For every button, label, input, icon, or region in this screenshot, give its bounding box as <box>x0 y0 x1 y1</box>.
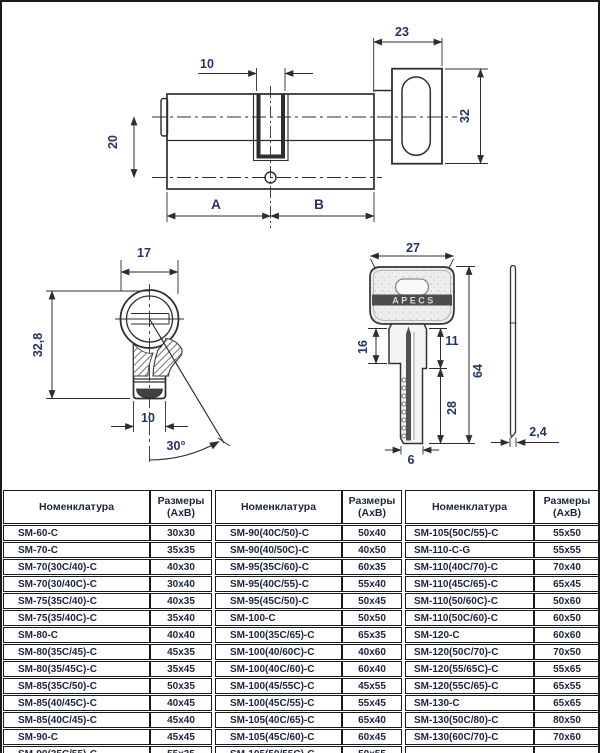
table-row: SM-70(30C/40)-C40x30 <box>3 559 212 575</box>
dim-label-blade: 28 <box>445 401 459 415</box>
table-row: SM-100(40/60C)-C40x60 <box>215 644 402 660</box>
size-cell: 45x45 <box>150 729 212 745</box>
table-row: SM-130-C65x65 <box>405 695 600 711</box>
table-row: SM-100(35C/65)-C65x35 <box>215 627 402 643</box>
cam-flap-hatch <box>153 339 182 377</box>
nomenclature-cell: SM-120(55C/65)-C <box>405 678 534 694</box>
nomenclature-cell: SM-95(35C/60)-C <box>215 559 342 575</box>
dim-label-tip-width: 6 <box>408 453 415 467</box>
size-cell: 70x40 <box>534 559 600 575</box>
table-row: SM-130(50C/80)-C80x50 <box>405 712 600 728</box>
size-cell: 60x50 <box>534 610 600 626</box>
size-cell: 55x45 <box>342 695 402 711</box>
nomenclature-cell: SM-60-C <box>3 525 150 541</box>
size-cell: 50x60 <box>534 593 600 609</box>
size-cell: 70x60 <box>534 729 600 745</box>
table-row: SM-120-C60x60 <box>405 627 600 643</box>
size-cell: 40x35 <box>150 593 212 609</box>
table-row: SM-105(50C/55)-C55x50 <box>405 525 600 541</box>
size-cell: 65x40 <box>342 712 402 728</box>
nomenclature-cell: SM-100(45C/55)-C <box>215 695 342 711</box>
dim-label-a: A <box>211 197 221 212</box>
rotation-line <box>150 319 225 443</box>
size-cell: 40x45 <box>150 695 212 711</box>
size-cell: 45x55 <box>342 678 402 694</box>
table-row: SM-105(45C/60)-C60x45 <box>215 729 402 745</box>
dim-label-knob-width: 23 <box>395 25 409 39</box>
dim-label-shoulder: 16 <box>356 340 370 354</box>
nomenclature-cell: SM-120(50C/70)-C <box>405 644 534 660</box>
size-cell: 55x65 <box>534 661 600 677</box>
table-row: SM-80(35/45C)-C35x45 <box>3 661 212 677</box>
size-cell: 60x45 <box>342 729 402 745</box>
nomenclature-cell: SM-80-C <box>3 627 150 643</box>
nomenclature-cell: SM-100(35C/65)-C <box>215 627 342 643</box>
size-cell: 55x40 <box>342 576 402 592</box>
table-row: SM-95(35C/60)-C60x35 <box>215 559 402 575</box>
nomenclature-cell <box>405 746 534 753</box>
size-header-line1: Размеры <box>344 495 400 507</box>
table-row <box>405 746 600 753</box>
cylinder-end-view: 17 32,8 10 30° <box>31 246 230 464</box>
dim-label-total-length: 64 <box>471 364 485 378</box>
size-table-2: Номенклатура Размеры (АхВ) SM-90(40C/50)… <box>215 489 402 753</box>
size-header: Размеры (АхВ) <box>534 490 600 524</box>
nomenclature-cell: SM-75(35C/40)-C <box>3 593 150 609</box>
size-cell: 70x50 <box>534 644 600 660</box>
nomenclature-cell: SM-100(40/60C)-C <box>215 644 342 660</box>
nomenclature-cell: SM-70(30/40C)-C <box>3 576 150 592</box>
dim-label-thickness: 2,4 <box>529 425 546 439</box>
nomenclature-cell: SM-95(45C/50)-C <box>215 593 342 609</box>
brand-label: APECS <box>392 296 436 306</box>
table-row: SM-100(45/55C)-C45x55 <box>215 678 402 694</box>
dim-label-width: 10 <box>141 411 155 425</box>
nomenclature-cell: SM-130(60C/70)-C <box>405 729 534 745</box>
size-cell: 55x50 <box>534 525 600 541</box>
table-row: SM-70-C35x35 <box>3 542 212 558</box>
thumbturn-oval <box>402 77 430 155</box>
size-cell: 50x50 <box>342 610 402 626</box>
table-row: SM-90(40/50C)-C40x50 <box>215 542 402 558</box>
nomenclature-cell: SM-110(40C/70)-C <box>405 559 534 575</box>
nomenclature-cell: SM-85(40C/45)-C <box>3 712 150 728</box>
size-table-1: Номенклатура Размеры (АхВ) SM-60-C30x30S… <box>3 489 212 753</box>
nomenclature-cell: SM-130(50C/80)-C <box>405 712 534 728</box>
table-row: SM-85(35C/50)-C50x35 <box>3 678 212 694</box>
table-row: SM-130(60C/70)-C70x60 <box>405 729 600 745</box>
nomenclature-cell: SM-90-C <box>3 729 150 745</box>
table-row: SM-60-C30x30 <box>3 525 212 541</box>
nomenclature-cell: SM-70(30C/40)-C <box>3 559 150 575</box>
size-cell: 45x40 <box>150 712 212 728</box>
dim-label-cam-width: 10 <box>200 57 214 71</box>
nomenclature-cell: SM-120(55/65C)-C <box>405 661 534 677</box>
nomenclature-cell: SM-70-C <box>3 542 150 558</box>
size-cell: 60x60 <box>534 627 600 643</box>
table-row: SM-110(50/60C)-C50x60 <box>405 593 600 609</box>
key-side-view: 2,4 <box>491 266 559 448</box>
nomenclature-cell: SM-105(50C/55)-C <box>405 525 534 541</box>
size-cell: 45x35 <box>150 644 212 660</box>
size-header: Размеры (АхВ) <box>150 490 212 524</box>
technical-drawing: 23 10 20 32 A B <box>2 2 600 486</box>
blade-groove <box>406 327 411 441</box>
table-row: SM-90(35C/55)-C55x35 <box>3 746 212 753</box>
cylinder-side-view: 23 10 20 32 A B <box>106 25 488 228</box>
header-row: Номенклатура Размеры (АхВ) <box>215 490 402 524</box>
nomenclature-cell: SM-105(50/55C)-C <box>215 746 342 753</box>
table-row: SM-100(40C/60)-C60x40 <box>215 661 402 677</box>
nomenclature-header: Номенклатура <box>215 490 342 524</box>
size-header-line1: Размеры <box>152 495 210 507</box>
size-header-line2: (АхВ) <box>152 507 210 519</box>
size-cell: 30x40 <box>150 576 212 592</box>
size-cell: 65x35 <box>342 627 402 643</box>
size-cell: 50x45 <box>342 593 402 609</box>
thumbturn <box>392 69 442 164</box>
size-cell: 40x50 <box>342 542 402 558</box>
nomenclature-cell: SM-110(50C/60)-C <box>405 610 534 626</box>
size-cell: 40x60 <box>342 644 402 660</box>
table-row: SM-75(35C/40)-C40x35 <box>3 593 212 609</box>
table-row: SM-95(40C/55)-C55x40 <box>215 576 402 592</box>
table-row: SM-100-C50x50 <box>215 610 402 626</box>
dim-label-angle: 30° <box>167 439 186 453</box>
table-row: SM-80(35C/45)-C45x35 <box>3 644 212 660</box>
key-side-profile <box>511 266 516 438</box>
size-cell: 60x40 <box>342 661 402 677</box>
size-cell: 40x30 <box>150 559 212 575</box>
table-row: SM-120(50C/70)-C70x50 <box>405 644 600 660</box>
size-cell: 65x45 <box>534 576 600 592</box>
table-row: SM-90(40C/50)-C50x40 <box>215 525 402 541</box>
dim-label-height: 32,8 <box>31 333 45 357</box>
nomenclature-cell: SM-80(35C/45)-C <box>3 644 150 660</box>
ext-line <box>371 259 376 268</box>
nomenclature-cell: SM-90(40/50C)-C <box>215 542 342 558</box>
nomenclature-cell: SM-110(45C/65)-C <box>405 576 534 592</box>
dim-label-neck: 11 <box>445 334 458 348</box>
table-row: SM-105(50/55C)-C50x55 <box>215 746 402 753</box>
table-row: SM-110-C-G55x55 <box>405 542 600 558</box>
size-cell: 35x45 <box>150 661 212 677</box>
table-row: SM-110(45C/65)-C65x45 <box>405 576 600 592</box>
nomenclature-cell: SM-120-C <box>405 627 534 643</box>
size-cell: 50x35 <box>150 678 212 694</box>
nomenclature-cell: SM-100(45/55C)-C <box>215 678 342 694</box>
table-row: SM-85(40/45C)-C40x45 <box>3 695 212 711</box>
table-row: SM-80-C40x40 <box>3 627 212 643</box>
table-row: SM-95(45C/50)-C50x45 <box>215 593 402 609</box>
size-table-3: Номенклатура Размеры (АхВ) SM-105(50C/55… <box>405 489 600 753</box>
screw-hole-section <box>137 389 163 398</box>
size-header-line1: Размеры <box>536 495 598 507</box>
nomenclature-cell: SM-90(35C/55)-C <box>3 746 150 753</box>
key-hole <box>396 279 429 295</box>
size-cell: 35x40 <box>150 610 212 626</box>
header-row: Номенклатура Размеры (АхВ) <box>3 490 212 524</box>
table-row: SM-120(55C/65)-C65x55 <box>405 678 600 694</box>
size-cell: 55x55 <box>534 542 600 558</box>
nomenclature-cell: SM-110(50/60C)-C <box>405 593 534 609</box>
table-row: SM-120(55/65C)-C55x65 <box>405 661 600 677</box>
size-cell: 65x65 <box>534 695 600 711</box>
nomenclature-cell: SM-85(40/45C)-C <box>3 695 150 711</box>
header-row: Номенклатура Размеры (АхВ) <box>405 490 600 524</box>
size-cell: 80x50 <box>534 712 600 728</box>
table-row: SM-110(50C/60)-C60x50 <box>405 610 600 626</box>
table-row: SM-70(30/40C)-C30x40 <box>3 576 212 592</box>
size-header-line2: (АхВ) <box>344 507 400 519</box>
size-header: Размеры (АхВ) <box>342 490 402 524</box>
size-cell: 65x55 <box>534 678 600 694</box>
cylinder-spec-sheet: 23 10 20 32 A B <box>0 0 600 753</box>
size-cell: 60x35 <box>342 559 402 575</box>
size-cell <box>534 746 600 753</box>
dim-label-axis-offset: 20 <box>106 135 120 149</box>
size-header-line2: (АхВ) <box>536 507 598 519</box>
nomenclature-header: Номенклатура <box>405 490 534 524</box>
nomenclature-cell: SM-130-C <box>405 695 534 711</box>
nomenclature-cell: SM-75(35/40C)-C <box>3 610 150 626</box>
size-cell: 40x40 <box>150 627 212 643</box>
nomenclature-cell: SM-85(35C/50)-C <box>3 678 150 694</box>
nomenclature-header: Номенклатура <box>3 490 150 524</box>
dim-label-knob-height: 32 <box>458 109 472 123</box>
table-row: SM-110(40C/70)-C70x40 <box>405 559 600 575</box>
nomenclature-cell: SM-100-C <box>215 610 342 626</box>
nomenclature-cell: SM-80(35/45C)-C <box>3 661 150 677</box>
nomenclature-cell: SM-105(45C/60)-C <box>215 729 342 745</box>
nomenclature-cell: SM-95(40C/55)-C <box>215 576 342 592</box>
dim-label-head-width: 27 <box>406 241 420 255</box>
dim-label-b: B <box>314 197 324 212</box>
rotation-tick <box>218 438 230 446</box>
size-cell: 55x35 <box>150 746 212 753</box>
nomenclature-cell: SM-90(40C/50)-C <box>215 525 342 541</box>
nomenclature-cell: SM-110-C-G <box>405 542 534 558</box>
size-cell: 30x30 <box>150 525 212 541</box>
table-row: SM-105(40C/65)-C65x40 <box>215 712 402 728</box>
table-row: SM-75(35/40C)-C35x40 <box>3 610 212 626</box>
table-row: SM-100(45C/55)-C55x45 <box>215 695 402 711</box>
table-row: SM-85(40C/45)-C45x40 <box>3 712 212 728</box>
ext-line <box>449 259 454 268</box>
key-front-view: APECS 27 16 <box>356 241 485 467</box>
nomenclature-cell: SM-105(40C/65)-C <box>215 712 342 728</box>
size-cell: 50x55 <box>342 746 402 753</box>
dim-label-diameter: 17 <box>137 246 151 260</box>
table-row: SM-90-C45x45 <box>3 729 212 745</box>
size-cell: 35x35 <box>150 542 212 558</box>
nomenclature-cell: SM-100(40C/60)-C <box>215 661 342 677</box>
size-cell: 50x40 <box>342 525 402 541</box>
